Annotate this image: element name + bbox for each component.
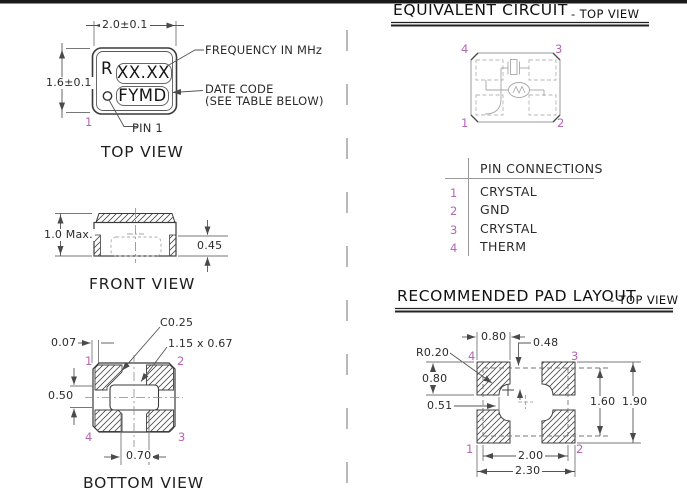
callout-datecode-line2: (SEE TABLE BELOW) [205, 95, 324, 107]
pin-connections-row1-connection: CRYSTAL [480, 186, 537, 198]
pad-layout-subtitle: - TOP VIEW [610, 294, 678, 306]
pin-connections-row3-pin: 3 [450, 224, 458, 236]
circuit-pin2-number: 2 [557, 117, 565, 129]
bottom-view-title: BOTTOM VIEW [83, 477, 204, 489]
dim-bottom-pad-height: 0.50 [46, 390, 75, 402]
bottom-view-pin4-number: 4 [85, 431, 93, 443]
circuit-pin4-number: 4 [461, 43, 469, 55]
pin-connections-row2-pin: 2 [450, 205, 458, 217]
bottom-view-drawing [70, 327, 183, 465]
dim-bottom-edge-offset: 0.07 [49, 337, 78, 349]
pin-connections-row1-pin: 1 [450, 187, 458, 199]
equivalent-circuit-drawing [471, 53, 560, 122]
pin-connections-row2-connection: GND [480, 204, 510, 216]
marking-frequency: XX.XX [116, 63, 172, 84]
top-view-pin1-number: 1 [85, 116, 93, 128]
dim-pad-inner-height: 1.60 [588, 396, 617, 408]
equivalent-circuit-subtitle: - TOP VIEW [571, 8, 639, 20]
dim-pad-width: 0.80 [479, 331, 508, 343]
bottom-view-pin3-number: 3 [178, 431, 186, 443]
pin-connections-row3-connection: CRYSTAL [480, 223, 537, 235]
pin-connections-row4-connection: THERM [480, 241, 526, 253]
pad-layout-pin3-number: 3 [571, 350, 579, 362]
front-view-title: FRONT VIEW [89, 278, 195, 290]
callout-frequency: FREQUENCY IN MHz [205, 44, 322, 56]
callout-pin1: PIN 1 [132, 122, 163, 134]
dim-pad-outer-width: 2.30 [513, 465, 542, 477]
dim-pad-outer-height: 1.90 [620, 396, 649, 408]
bottom-view-pin1-number: 1 [85, 355, 93, 367]
marking-prefix: R [101, 63, 113, 75]
bottom-view-pin2-number: 2 [177, 355, 185, 367]
dim-pad-inner-width: 2.00 [516, 450, 545, 462]
dim-front-pad-height: 0.45 [197, 240, 222, 252]
pad-layout-title: RECOMMENDED PAD LAYOUT [397, 290, 636, 302]
pad-layout-pin4-number: 4 [468, 350, 476, 362]
equivalent-circuit-title: EQUIVALENT CIRCUIT [393, 4, 568, 16]
pin-connections-row4-pin: 4 [450, 242, 458, 254]
dim-bottom-cavity: 1.15 x 0.67 [168, 338, 233, 350]
datasheet-drawing: 2.0±0.1 1.6±0.1 R XX.XX FYMD FREQUENCY I… [0, 0, 687, 502]
marking-datecode: FYMD [116, 86, 169, 106]
dim-front-height: 1.0 Max. [42, 229, 95, 241]
dim-bottom-pad-gap: 0.70 [124, 450, 153, 462]
top-view-title: TOP VIEW [101, 146, 184, 158]
dim-pad-top-offset: 0.48 [533, 337, 558, 349]
pad-layout-pin2-number: 2 [576, 443, 584, 455]
thermistor-symbol [509, 83, 530, 98]
dim-pad-corner-radius: R0.20 [416, 347, 449, 359]
circuit-pin1-number: 1 [461, 117, 469, 129]
dim-top-width: 2.0±0.1 [100, 19, 150, 31]
dim-pad-side-offset: 0.51 [427, 400, 452, 412]
dim-top-height: 1.6±0.1 [44, 77, 94, 89]
circuit-pin3-number: 3 [555, 43, 563, 55]
pin1-dot-marker [103, 92, 111, 100]
pad-layout-pin1-number: 1 [466, 443, 474, 455]
crystal-symbol [501, 60, 529, 75]
dim-pad-height: 0.80 [420, 373, 449, 385]
sheet-border-top [0, 0, 687, 4]
pin-connections-header: PIN CONNECTIONS [480, 163, 603, 175]
dim-bottom-chamfer: C0.25 [160, 317, 193, 329]
